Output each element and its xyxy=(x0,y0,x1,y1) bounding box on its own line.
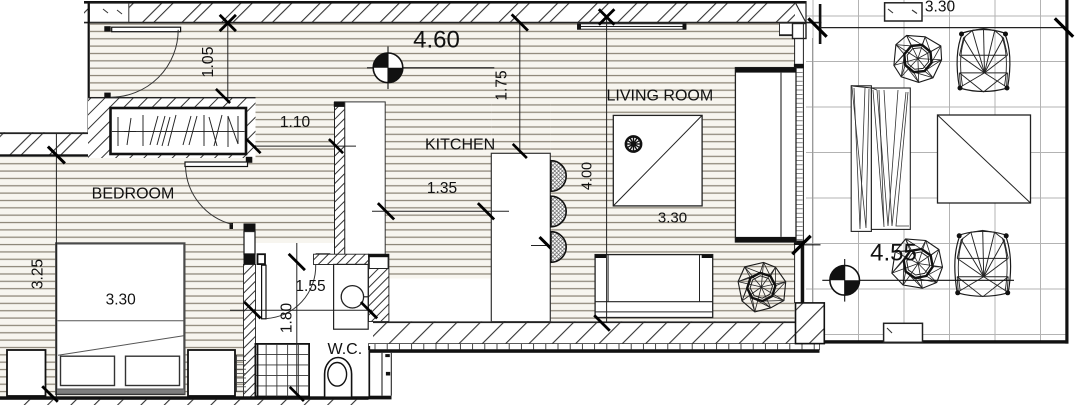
svg-text:4.00: 4.00 xyxy=(580,162,596,190)
svg-text:3.30: 3.30 xyxy=(925,0,956,16)
svg-text:1.35: 1.35 xyxy=(427,180,457,197)
svg-text:1.05: 1.05 xyxy=(200,46,217,77)
svg-text:3.30: 3.30 xyxy=(106,292,137,309)
svg-text:1.75: 1.75 xyxy=(494,70,511,100)
svg-text:3.30: 3.30 xyxy=(658,210,687,227)
svg-text:1.55: 1.55 xyxy=(295,278,325,295)
svg-text:KITCHEN: KITCHEN xyxy=(425,137,495,154)
svg-text:BEDROOM: BEDROOM xyxy=(92,186,175,203)
svg-text:LIVING ROOM: LIVING ROOM xyxy=(607,87,714,104)
svg-text:3.25: 3.25 xyxy=(30,259,47,289)
svg-text:1.80: 1.80 xyxy=(279,303,296,334)
svg-text:4.60: 4.60 xyxy=(413,27,460,54)
svg-text:W.C.: W.C. xyxy=(328,341,363,358)
svg-text:4.55: 4.55 xyxy=(870,240,917,267)
svg-text:1.10: 1.10 xyxy=(280,114,311,131)
